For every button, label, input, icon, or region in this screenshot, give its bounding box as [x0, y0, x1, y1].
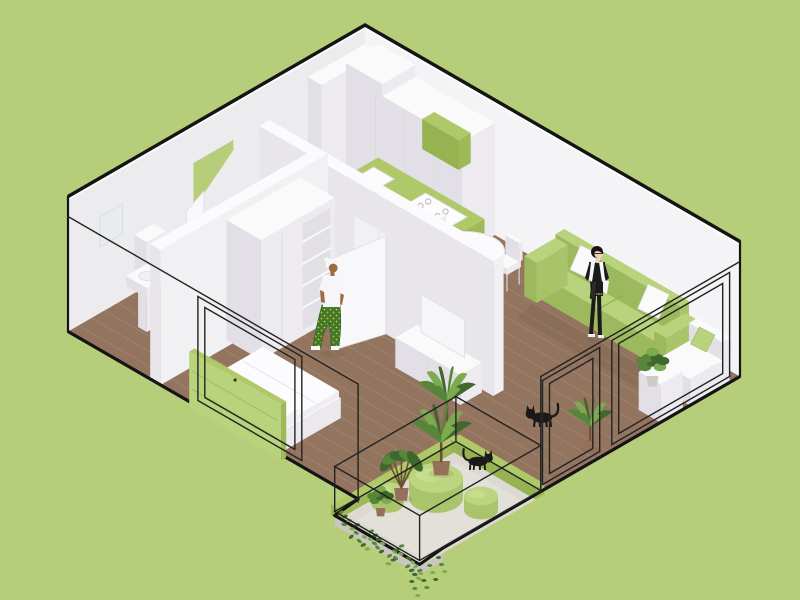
- green-pouf: [464, 487, 498, 520]
- isometric-scene: [0, 0, 800, 600]
- apartment-render: [0, 0, 800, 600]
